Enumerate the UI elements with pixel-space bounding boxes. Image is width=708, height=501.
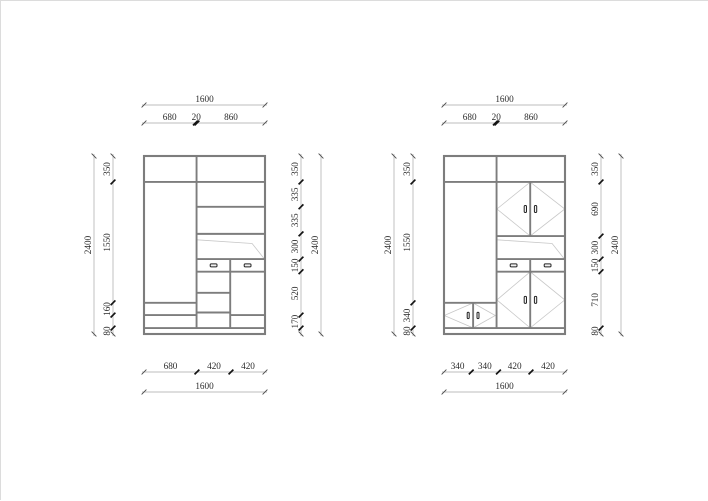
dim-right-overall: 2400 (310, 154, 323, 337)
dim-label: 340 (402, 308, 412, 322)
dim-label: 350 (590, 162, 600, 176)
drawing-page: 1600680208606804204201600240035015501608… (0, 0, 708, 500)
dim-label: 420 (541, 361, 555, 371)
dim-left-overall: 2400 (383, 154, 396, 337)
dim-right-sections: 35069030015071080 (590, 154, 603, 337)
dim-label: 1600 (195, 381, 214, 391)
dim-label: 1600 (195, 94, 214, 104)
dim-left-overall: 2400 (83, 154, 96, 337)
dim-label: 1550 (102, 233, 112, 252)
dim-label: 350 (402, 162, 412, 176)
dim-label: 170 (290, 314, 300, 328)
dim-top-sections: 68020860 (442, 112, 568, 125)
view-door-elevation: 1600680208603403404204201600240035015503… (383, 94, 623, 394)
dim-label: 1600 (495, 381, 514, 391)
drawing-canvas: 1600680208606804204201600240035015501608… (1, 1, 708, 501)
door-mark-line (444, 303, 495, 328)
handle (534, 206, 536, 213)
dim-left-sections: 350155016080 (102, 154, 115, 337)
dim-label: 340 (451, 361, 465, 371)
dim-label: 1600 (495, 94, 514, 104)
view-carcass-elevation: 1600680208606804204201600240035015501608… (83, 94, 323, 394)
dim-label: 350 (102, 162, 112, 176)
dim-label: 420 (241, 361, 255, 371)
dim-label: 350 (290, 162, 300, 176)
dim-label: 150 (290, 258, 300, 272)
handle (210, 264, 217, 267)
dim-label: 335 (290, 187, 300, 201)
dim-bottom-sections: 340340420420 (442, 361, 568, 374)
dim-label: 1550 (402, 233, 412, 252)
dim-label: 680 (163, 112, 177, 122)
handle (524, 206, 526, 213)
door-mark-line (497, 240, 564, 259)
dim-label: 2400 (310, 235, 320, 254)
dim-label: 335 (290, 213, 300, 227)
dim-label: 690 (590, 202, 600, 216)
handle (544, 264, 551, 267)
dim-label: 710 (590, 293, 600, 307)
dim-label: 860 (224, 112, 238, 122)
dim-right-overall: 2400 (610, 154, 623, 337)
dim-label: 20 (492, 112, 502, 122)
handle (467, 312, 469, 318)
dim-label: 860 (524, 112, 538, 122)
dim-label: 2400 (383, 235, 393, 254)
dim-label: 300 (590, 240, 600, 254)
door-mark-line (197, 240, 264, 259)
handle (477, 312, 479, 318)
dim-label: 680 (164, 361, 178, 371)
dim-label: 420 (207, 361, 221, 371)
dim-label: 340 (478, 361, 492, 371)
dim-right-sections: 350335335300150520170 (290, 154, 303, 337)
handle (244, 264, 251, 267)
dim-label: 80 (102, 326, 112, 336)
dim-label: 20 (192, 112, 202, 122)
dim-label: 80 (590, 326, 600, 336)
dim-label: 150 (590, 258, 600, 272)
dim-label: 680 (463, 112, 477, 122)
dim-label: 520 (290, 286, 300, 300)
dim-left-sections: 350155034080 (402, 154, 415, 337)
dim-top-overall: 1600 (442, 94, 568, 107)
handle (534, 296, 536, 303)
dim-top-overall: 1600 (142, 94, 268, 107)
dim-label: 300 (290, 239, 300, 253)
dim-label: 2400 (610, 235, 620, 254)
handle (524, 296, 526, 303)
dim-bottom-sections: 680420420 (142, 361, 268, 374)
dim-label: 80 (402, 326, 412, 336)
dim-bottom-overall: 1600 (142, 381, 268, 394)
dim-bottom-overall: 1600 (442, 381, 568, 394)
dim-label: 160 (102, 302, 112, 316)
dim-label: 420 (508, 361, 522, 371)
dim-top-sections: 68020860 (142, 112, 268, 125)
handle (510, 264, 517, 267)
dim-label: 2400 (83, 235, 93, 254)
